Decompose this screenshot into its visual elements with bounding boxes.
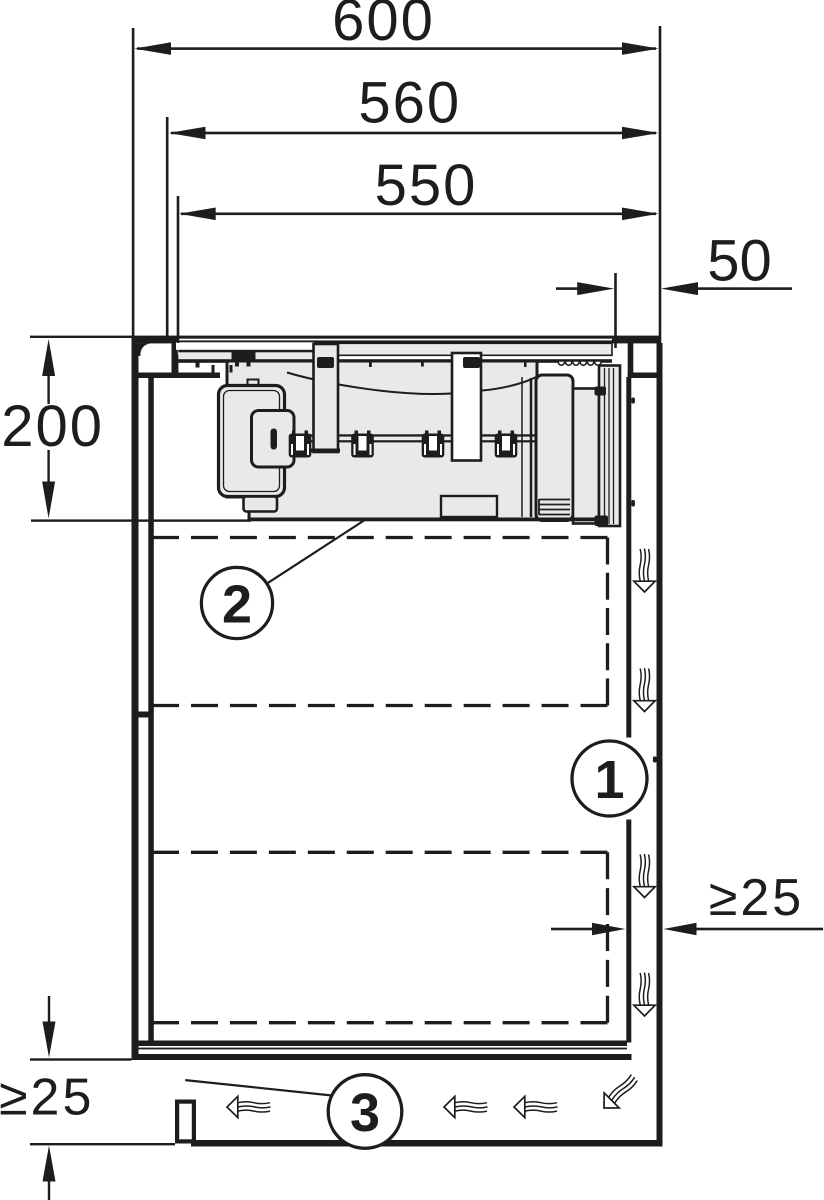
svg-text:3: 3 — [350, 1083, 380, 1143]
svg-text:≥25: ≥25 — [0, 1069, 94, 1127]
svg-text:200: 200 — [1, 394, 104, 459]
svg-text:1: 1 — [594, 750, 624, 810]
svg-text:560: 560 — [358, 71, 461, 136]
svg-text:550: 550 — [375, 153, 478, 218]
svg-text:≥25: ≥25 — [709, 869, 804, 927]
svg-text:600: 600 — [332, 0, 435, 53]
svg-text:50: 50 — [707, 229, 772, 294]
svg-text:2: 2 — [222, 575, 252, 635]
